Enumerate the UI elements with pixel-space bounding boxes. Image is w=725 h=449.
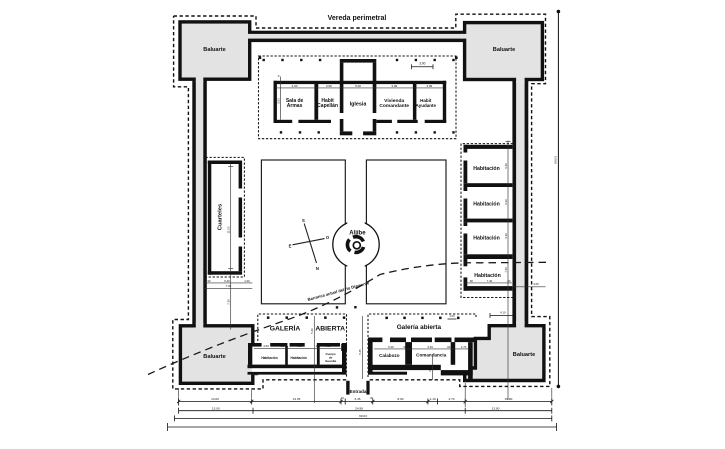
svg-text:1.00: 1.00 — [449, 314, 455, 318]
svg-text:5.03: 5.03 — [277, 98, 281, 104]
svg-text:Habit: Habit — [420, 98, 432, 103]
svg-text:Comandante: Comandante — [379, 103, 409, 109]
svg-text:4.70: 4.70 — [448, 397, 454, 401]
svg-text:Aljibe: Aljibe — [349, 231, 366, 237]
svg-text:5.40: 5.40 — [427, 345, 433, 349]
svg-text:4.50: 4.50 — [296, 344, 302, 348]
svg-text:3.45: 3.45 — [354, 397, 360, 401]
svg-text:13.00: 13.00 — [492, 406, 500, 410]
svg-text:7.40: 7.40 — [504, 267, 508, 273]
svg-text:15.80: 15.80 — [505, 397, 513, 401]
svg-text:Guardia: Guardia — [325, 359, 336, 363]
svg-text:69.03: 69.03 — [553, 156, 557, 164]
svg-text:S: S — [302, 218, 305, 223]
svg-text:8.00: 8.00 — [397, 397, 403, 401]
svg-text:2.70: 2.70 — [461, 345, 467, 349]
svg-text:3.00: 3.00 — [325, 344, 331, 348]
svg-text:4.00: 4.00 — [292, 84, 298, 88]
svg-text:.60: .60 — [446, 345, 450, 349]
svg-text:11.03: 11.03 — [226, 226, 230, 233]
svg-text:Habitación: Habitación — [473, 166, 500, 172]
svg-text:Cuarteles: Cuarteles — [218, 204, 224, 230]
svg-text:E: E — [289, 243, 292, 248]
svg-text:69.03: 69.03 — [359, 414, 367, 418]
svg-text:5.40: 5.40 — [310, 328, 314, 334]
svg-text:Baluarte: Baluarte — [203, 47, 225, 53]
svg-text:5.30: 5.30 — [504, 233, 508, 239]
svg-text:Capellán: Capellán — [317, 103, 338, 109]
svg-text:14.35: 14.35 — [293, 397, 301, 401]
svg-text:Habitación: Habitación — [473, 201, 500, 207]
svg-text:GALERÍA: GALERÍA — [270, 324, 301, 333]
svg-text:6.40: 6.40 — [224, 279, 230, 283]
svg-text:.30: .30 — [402, 345, 406, 349]
svg-text:5.30: 5.30 — [504, 199, 508, 205]
svg-text:Vereda perimetral: Vereda perimetral — [328, 15, 387, 22]
svg-text:Iglesia: Iglesia — [350, 101, 368, 107]
svg-text:1.00: 1.00 — [244, 279, 250, 283]
svg-text:.30: .30 — [207, 279, 211, 283]
svg-text:4.63: 4.63 — [263, 344, 269, 348]
svg-text:S: S — [278, 74, 280, 78]
svg-text:1.10: 1.10 — [430, 397, 436, 401]
svg-text:3.99: 3.99 — [326, 84, 332, 88]
svg-text:Comandancia: Comandancia — [416, 353, 447, 358]
svg-text:3.05: 3.05 — [533, 282, 539, 286]
svg-text:.30: .30 — [372, 84, 377, 88]
svg-text:Calabozo: Calabozo — [379, 353, 400, 358]
svg-text:24.98: 24.98 — [355, 406, 363, 410]
svg-text:Galería abierta: Galería abierta — [397, 324, 442, 331]
svg-text:Vivienda: Vivienda — [384, 98, 404, 104]
svg-text:2.30: 2.30 — [428, 366, 432, 372]
svg-text:Habitación: Habitación — [261, 356, 277, 360]
svg-text:Baluarte: Baluarte — [513, 352, 535, 358]
svg-text:5.45: 5.45 — [358, 349, 362, 355]
svg-text:Ayudante: Ayudante — [416, 103, 437, 108]
svg-text:4.10: 4.10 — [500, 311, 506, 315]
svg-text:3.99: 3.99 — [391, 84, 397, 88]
svg-text:.30: .30 — [340, 396, 344, 400]
svg-text:3.99: 3.99 — [426, 84, 432, 88]
svg-text:13.00: 13.00 — [212, 406, 220, 410]
svg-text:Entrada: Entrada — [350, 389, 367, 394]
svg-text:.30: .30 — [369, 396, 373, 400]
svg-text:.30: .30 — [315, 344, 319, 348]
svg-text:Baluarte: Baluarte — [203, 354, 225, 360]
svg-text:.30: .30 — [280, 344, 284, 348]
svg-text:7.00: 7.00 — [226, 284, 232, 288]
svg-text:N: N — [316, 266, 319, 271]
svg-text:5.40: 5.40 — [388, 345, 394, 349]
svg-text:.30: .30 — [413, 84, 418, 88]
svg-text:7.30: 7.30 — [226, 299, 230, 305]
svg-text:13.00: 13.00 — [211, 397, 219, 401]
svg-text:.30: .30 — [314, 84, 319, 88]
svg-text:ABIERTA: ABIERTA — [315, 326, 345, 333]
svg-text:3.00: 3.00 — [419, 62, 425, 66]
svg-text:Habitación: Habitación — [291, 356, 307, 360]
svg-text:Habitación: Habitación — [473, 236, 500, 242]
svg-text:.60: .60 — [507, 279, 511, 283]
svg-text:7.40: 7.40 — [487, 279, 493, 283]
svg-text:.60: .60 — [469, 279, 473, 283]
svg-text:Baluarte: Baluarte — [493, 47, 515, 53]
svg-text:5.30: 5.30 — [504, 163, 508, 169]
svg-text:5.00: 5.00 — [355, 84, 361, 88]
svg-text:Armas: Armas — [287, 103, 303, 109]
